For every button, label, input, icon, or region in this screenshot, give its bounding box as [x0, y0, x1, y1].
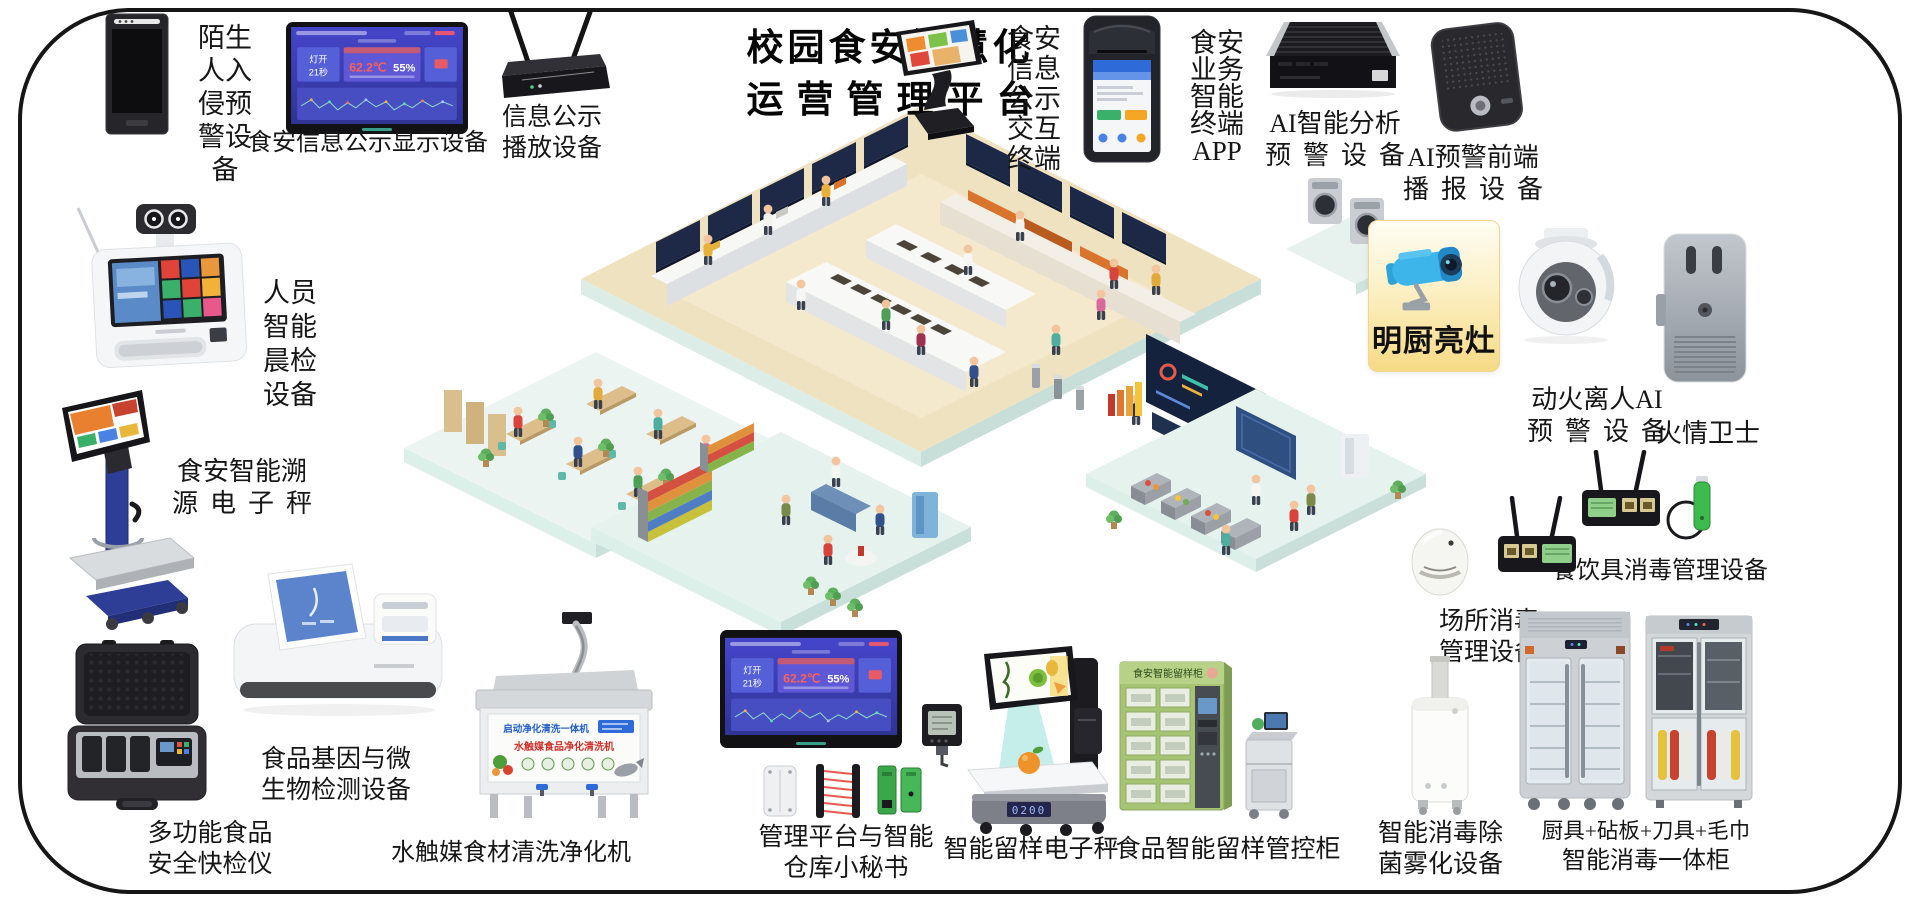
ai-broadcast-label: AI预警前端 播报设备 [1398, 142, 1548, 206]
site-sensor-device [1406, 522, 1474, 600]
svg-text:55%: 55% [827, 673, 849, 685]
svg-text:食安智能留样柜: 食安智能留样柜 [1133, 667, 1203, 680]
morning-check-label: 人员 智能 晨检 设备 [258, 276, 322, 412]
fire-guard-label: 火情卫士 [1652, 418, 1764, 450]
tableware-dongle-device [1664, 472, 1722, 556]
interactive-terminal-device [880, 18, 998, 144]
washer-label: 水触媒食材清洗净化机 [382, 838, 640, 869]
ai-analysis-label: AI智能分析 预警设备 [1260, 108, 1410, 172]
info-display-device: 灯开 21秒 62.2℃ 55% [286, 22, 468, 134]
interactive-terminal-label: 食安 信息 公示 交互 终端 [1002, 24, 1066, 174]
svg-text:62.2℃: 62.2℃ [349, 60, 386, 74]
fog-sterilizer-device [1404, 656, 1476, 816]
mgmt-platform-label: 管理平台与智能 仓库小秘书 [734, 822, 958, 884]
junction-box-device [760, 764, 800, 818]
stranger-alarm-device [84, 12, 190, 138]
business-app-label: 食安 业务 智能 终端 APP [1184, 30, 1250, 165]
monitor-logo [796, 742, 826, 745]
ai-broadcast-device [1420, 16, 1532, 144]
utensil-cabinet-b-device [1640, 612, 1758, 810]
washer-device: 启动净化清洗一体机 水触媒食品净化清洗机 [466, 610, 662, 820]
bright-kitchen-label: 明厨亮灶 [1372, 316, 1496, 372]
cctv-camera-icon [1375, 230, 1493, 316]
bright-kitchen-card: 明厨亮灶 [1368, 220, 1500, 372]
temp-logger-device [918, 700, 966, 768]
mgmt-monitor-device: 灯开 21秒 62.2℃ 55% [720, 630, 902, 748]
svg-text:水触媒食品净化清洗机: 水触媒食品净化清洗机 [513, 740, 614, 753]
trace-scale-label: 食安智能溯 源电子秤 [164, 456, 320, 520]
svg-text:灯开: 灯开 [743, 665, 761, 675]
ai-analysis-device [1258, 14, 1408, 114]
svg-text:62.2℃: 62.2℃ [783, 671, 820, 685]
sample-cabinet-label: 食品智能留样管控柜 [1090, 834, 1366, 865]
svg-text:55%: 55% [393, 62, 415, 74]
info-player-label: 信息公示 播放设备 [492, 102, 612, 164]
info-player-device [492, 8, 618, 110]
cafeteria-isometric-illustration [356, 94, 1426, 644]
gene-detector-label: 食品基因与微 生物检测设备 [248, 744, 424, 806]
utensil-cabinet-label: 厨具+砧板+刀具+毛巾 智能消毒一体柜 [1524, 816, 1768, 877]
svg-text:21秒: 21秒 [309, 67, 328, 78]
business-app-device [1076, 12, 1168, 166]
sample-scale-label: 智能留样电子秤 [938, 834, 1124, 865]
tableware-router-device [1576, 450, 1666, 550]
fog-sterilizer-label: 智能消毒除 菌雾化设备 [1378, 818, 1502, 880]
fire-guard-device [1648, 226, 1762, 396]
site-router-device [1492, 496, 1582, 596]
gene-detector-device [224, 560, 454, 724]
rapid-tester-label: 多功能食品 安全快检仪 [122, 818, 298, 880]
svg-text:灯开: 灯开 [309, 54, 327, 64]
morning-check-device [60, 202, 268, 372]
svg-text:21秒: 21秒 [743, 678, 762, 689]
utensil-cabinet-a-device [1512, 606, 1638, 814]
svg-text:0200: 0200 [1012, 804, 1047, 817]
stranger-alarm-label: 陌生 人入 侵预 警设 备 [194, 22, 256, 187]
sensor-pcb-device [876, 764, 924, 816]
svg-text:启动净化清洗一体机: 启动净化清洗一体机 [503, 723, 589, 735]
sample-scale-device: 0200 [950, 644, 1130, 838]
fire-leave-ai-device [1500, 226, 1632, 346]
light-curtain-device [812, 762, 864, 820]
info-display-label: 食安信息公示显示设备 [246, 128, 490, 159]
rapid-tester-device [60, 640, 214, 818]
sample-cart-device [1238, 706, 1298, 820]
